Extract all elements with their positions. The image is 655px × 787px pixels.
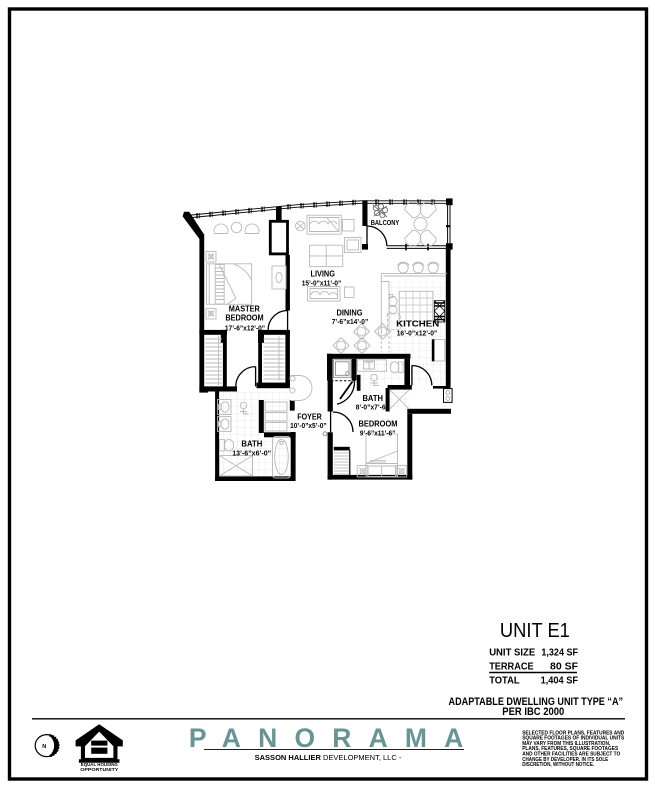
svg-text:BALCONY: BALCONY [371, 218, 400, 227]
svg-text:TERRACE: TERRACE [489, 662, 534, 673]
svg-text:8’-0”x7’-6”: 8’-0”x7’-6” [356, 402, 389, 411]
svg-text:DISCRETION, WITHOUT NOTICE.: DISCRETION, WITHOUT NOTICE. [522, 762, 595, 768]
svg-text:1,404 SF: 1,404 SF [541, 676, 578, 687]
svg-text:LIVING: LIVING [311, 269, 335, 278]
svg-text:15’-0”x11’-0”: 15’-0”x11’-0” [302, 279, 342, 288]
svg-text:BEDROOM: BEDROOM [225, 314, 263, 323]
svg-text:MASTER: MASTER [229, 304, 260, 313]
svg-text:17’-6”x12’-0”: 17’-6”x12’-0” [225, 324, 265, 333]
svg-text:13’-6”x6’-0”: 13’-6”x6’-0” [232, 448, 271, 457]
svg-text:PER IBC 2000: PER IBC 2000 [502, 706, 564, 718]
svg-text:10’-0”x5’-0”: 10’-0”x5’-0” [290, 421, 327, 430]
svg-text:TOTAL: TOTAL [489, 676, 519, 687]
svg-text:1,324 SF: 1,324 SF [541, 648, 578, 659]
svg-text:OPPORTUNITY: OPPORTUNITY [80, 767, 118, 772]
svg-text:N: N [42, 744, 46, 750]
svg-text:7’-6”x14’-0”: 7’-6”x14’-0” [332, 317, 369, 326]
svg-text:KITCHEN: KITCHEN [396, 320, 439, 329]
svg-text:BATH: BATH [241, 440, 262, 449]
svg-text:SASSON HALLIER DEVELOPMENT, LL: SASSON HALLIER DEVELOPMENT, LLC - [255, 753, 402, 762]
svg-text:FOYER: FOYER [297, 412, 322, 421]
svg-text:16’-0”x12’-0”: 16’-0”x12’-0” [397, 329, 438, 338]
svg-text:UNIT E1: UNIT E1 [500, 619, 570, 642]
svg-text:80 SF: 80 SF [550, 662, 578, 673]
svg-text:9’-6”x11’-6”: 9’-6”x11’-6” [360, 429, 396, 438]
svg-text:BEDROOM: BEDROOM [359, 420, 398, 429]
svg-text:UNIT SIZE: UNIT SIZE [489, 648, 535, 659]
